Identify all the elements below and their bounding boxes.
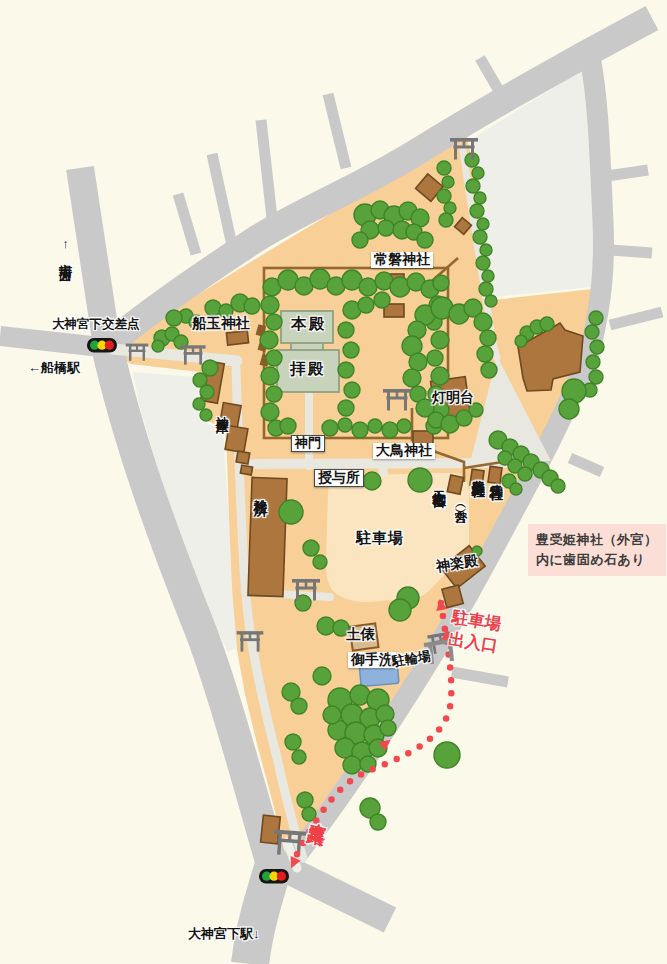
label-mitarashi: 御手洗 xyxy=(348,652,396,668)
label-funabashi-eki: ←船橋駅 xyxy=(28,361,80,375)
label-amenomihashira: 天之御柱宮 xyxy=(431,479,446,484)
label-kosaten: 大神宮下交差点 xyxy=(52,318,140,332)
note-line2: 内に歯固め石あり xyxy=(536,550,658,570)
label-haiden: 拝殿 xyxy=(290,361,325,378)
label-honden: 本殿 xyxy=(291,316,326,333)
label-tomyodai: 灯明台 xyxy=(432,390,474,405)
label-yakumo-shrine: 八雲神社 xyxy=(488,473,503,477)
shrine-map: ↑市場方面 大神宮下交差点 ←船橋駅 船玉神社 常磐神社 本殿 拝殿 神門 神輿… xyxy=(0,0,667,964)
label-ichiba-homen: ↑市場方面 xyxy=(58,236,72,261)
note-teething-stone: 豊受姫神社（外宮） 内に歯固め石あり xyxy=(528,524,666,576)
label-shamusho: 社務所 xyxy=(253,487,268,493)
label-otori-shrine: 大鳥神社 xyxy=(373,443,435,459)
label-parking-exit: 駐車場 出入口 xyxy=(447,606,503,658)
label-mikoshiko: 神輿庫 xyxy=(215,405,229,411)
note-line1: 豊受姫神社（外宮） xyxy=(536,530,658,550)
label-dohyo: 土俵 xyxy=(346,627,375,643)
label-toyouke-shrine: 豊受姫神社 xyxy=(470,469,485,474)
label-shinmon: 神門 xyxy=(291,435,325,452)
label-parking: 駐車場 xyxy=(356,530,404,546)
label-funadama-shrine: 船玉神社 xyxy=(192,316,250,332)
label-juyosho: 授与所 xyxy=(314,469,364,487)
label-tokiwa-shrine: 常磐神社 xyxy=(371,252,433,268)
label-station-bottom: 大神宮下駅↓ xyxy=(188,927,260,941)
